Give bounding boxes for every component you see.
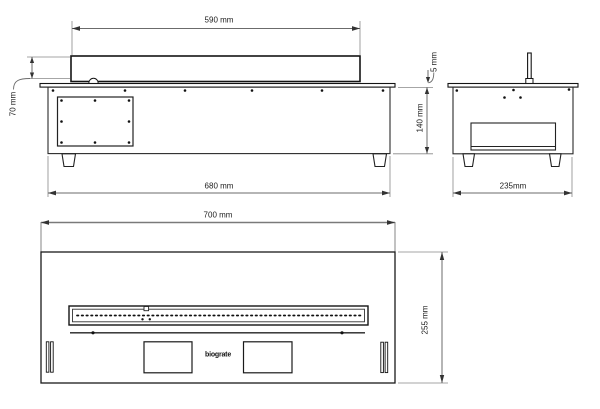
front-view — [14, 21, 396, 197]
side-foot-right — [550, 154, 562, 167]
arrowhead — [440, 252, 444, 260]
side-top-plate — [448, 84, 578, 88]
arrowhead — [425, 88, 429, 95]
dim-label-side-lip: 5 mm — [430, 51, 439, 73]
arrowhead — [48, 191, 56, 196]
rod-dot — [91, 331, 94, 334]
arrowhead — [30, 73, 34, 79]
hatch-right — [244, 342, 293, 373]
burner-dot — [149, 318, 151, 320]
front-foot-left — [62, 154, 76, 167]
dim-label-front-top: 590 mm — [204, 16, 235, 25]
burner-dot — [141, 318, 143, 320]
dim-label-top-width: 700 mm — [203, 211, 234, 220]
dim-label-front-bottom: 680 mm — [204, 182, 235, 191]
arrowhead — [440, 375, 444, 383]
leader-curve — [14, 79, 31, 90]
dim-label-top-depth: 255 mm — [421, 305, 430, 336]
dim-label-side-bottom: 235mm — [499, 182, 528, 191]
arrowhead — [72, 26, 80, 31]
dim-label-front-left: 70 mm — [9, 91, 18, 117]
burner-tray-outline — [71, 56, 360, 82]
arrowhead — [453, 191, 461, 196]
arrowhead — [41, 220, 49, 225]
technical-drawing-canvas: 590 mm 70 mm 680 mm 5 mm 140 mm 235mm 70… — [0, 0, 600, 409]
front-foot-right — [373, 154, 387, 167]
arrowhead — [564, 191, 572, 196]
front-top-plate — [40, 84, 395, 88]
arrowhead — [425, 147, 429, 154]
hatch-left — [144, 342, 192, 373]
side-opening-outline — [471, 123, 556, 150]
arrowhead — [352, 26, 360, 31]
arrowhead — [30, 57, 34, 63]
handle-rod-base — [526, 79, 533, 84]
arrowhead — [382, 191, 390, 196]
arrowhead — [387, 220, 395, 225]
top-view — [41, 220, 448, 383]
rod-dot — [340, 331, 343, 334]
igniter-bump — [89, 78, 98, 83]
brand-logo: biograte — [205, 352, 231, 359]
burner-filler-tab — [144, 307, 149, 311]
dim-label-side-height: 140 mm — [416, 103, 425, 134]
side-foot-left — [463, 154, 475, 167]
drawing-geometry — [0, 0, 600, 409]
